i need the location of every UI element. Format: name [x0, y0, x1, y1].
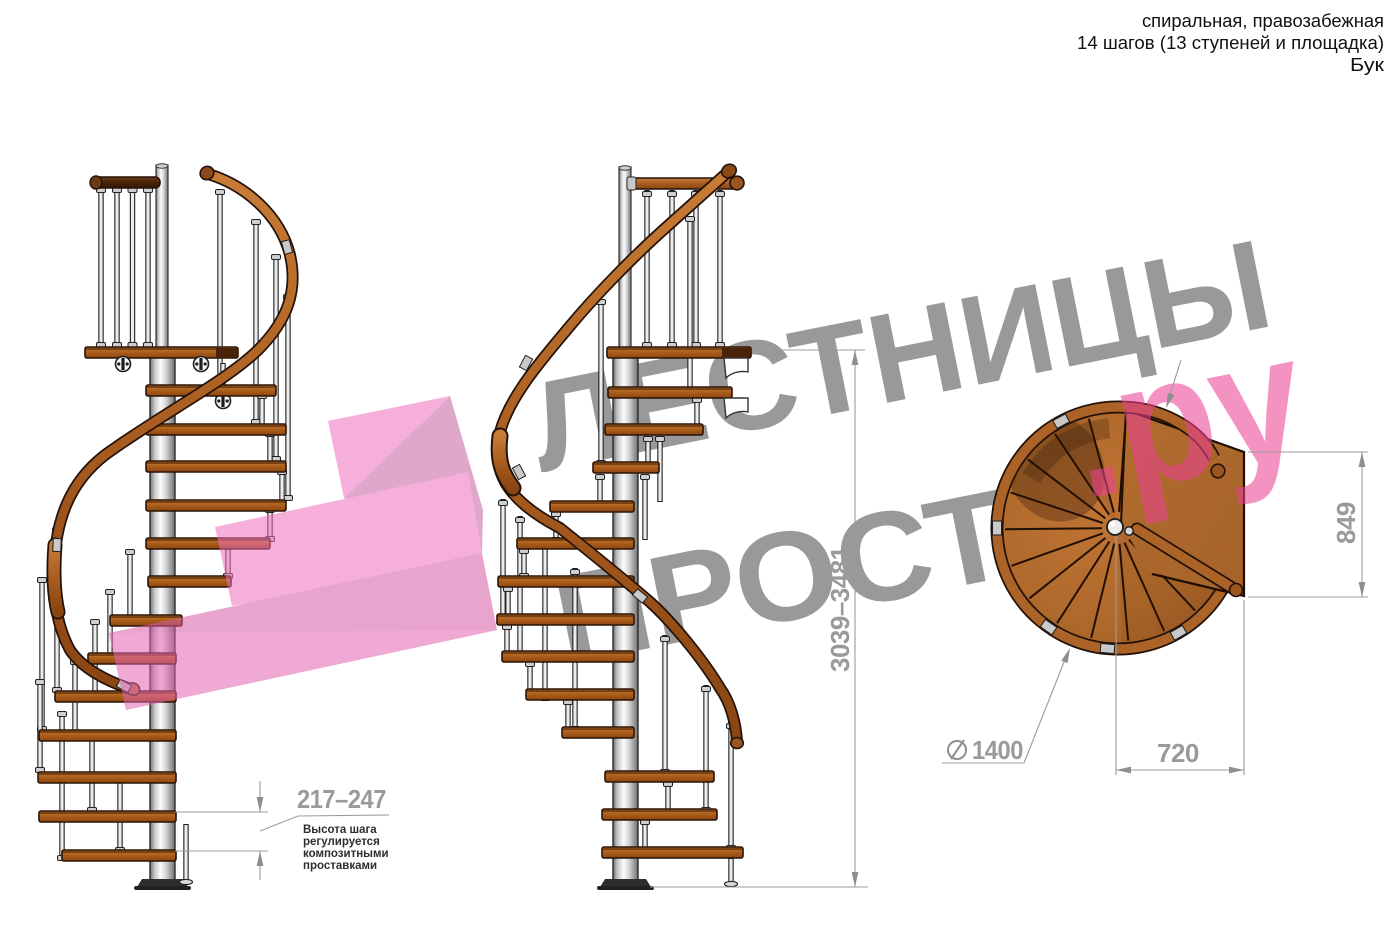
svg-text:Бук: Бук: [1350, 55, 1384, 75]
svg-text:3039–3481: 3039–3481: [825, 546, 855, 672]
svg-text:849: 849: [1331, 502, 1361, 544]
svg-text:спиральная, правозабежная: спиральная, правозабежная: [1142, 11, 1384, 31]
svg-text:проставками: проставками: [303, 860, 377, 872]
svg-text:1400: 1400: [972, 735, 1023, 765]
svg-text:720: 720: [1157, 738, 1199, 768]
svg-text:регулируется: регулируется: [303, 836, 380, 848]
svg-text:14 шагов (13 ступеней и площад: 14 шагов (13 ступеней и площадка): [1077, 33, 1384, 53]
svg-text:217–247: 217–247: [297, 784, 386, 814]
svg-text:Высота шага: Высота шага: [303, 824, 377, 836]
svg-text:композитными: композитными: [303, 848, 389, 860]
